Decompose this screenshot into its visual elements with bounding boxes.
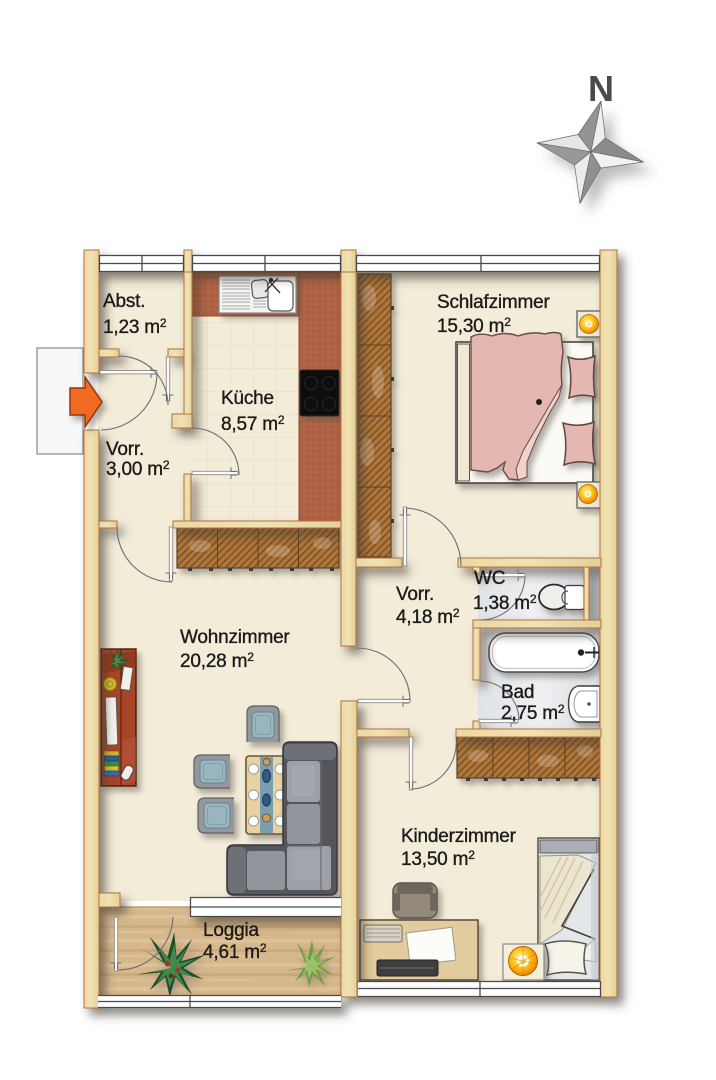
svg-text:WC: WC <box>474 568 505 589</box>
svg-text:Schlafzimmer: Schlafzimmer <box>437 292 551 313</box>
svg-text:Kinderzimmer: Kinderzimmer <box>401 826 517 847</box>
svg-text:Vorr.: Vorr. <box>396 584 434 605</box>
svg-text:1,38 m2: 1,38 m2 <box>473 592 537 614</box>
svg-text:Vorr.: Vorr. <box>106 439 144 460</box>
svg-text:Bad: Bad <box>501 682 534 703</box>
svg-text:1,23 m2: 1,23 m2 <box>103 316 167 338</box>
svg-text:15,30 m2: 15,30 m2 <box>437 315 511 337</box>
svg-text:2,75 m2: 2,75 m2 <box>501 702 565 724</box>
svg-text:4,61 m2: 4,61 m2 <box>203 941 267 963</box>
svg-text:Loggia: Loggia <box>203 920 259 941</box>
svg-text:Wohnzimmer: Wohnzimmer <box>180 627 290 648</box>
svg-text:Küche: Küche <box>221 388 274 409</box>
svg-text:4,18 m2: 4,18 m2 <box>396 606 460 628</box>
svg-text:13,50 m2: 13,50 m2 <box>401 848 475 870</box>
svg-text:Abst.: Abst. <box>103 291 145 312</box>
svg-text:3,00 m2: 3,00 m2 <box>106 458 170 480</box>
svg-text:8,57 m2: 8,57 m2 <box>221 413 285 435</box>
svg-text:20,28 m2: 20,28 m2 <box>180 650 254 672</box>
